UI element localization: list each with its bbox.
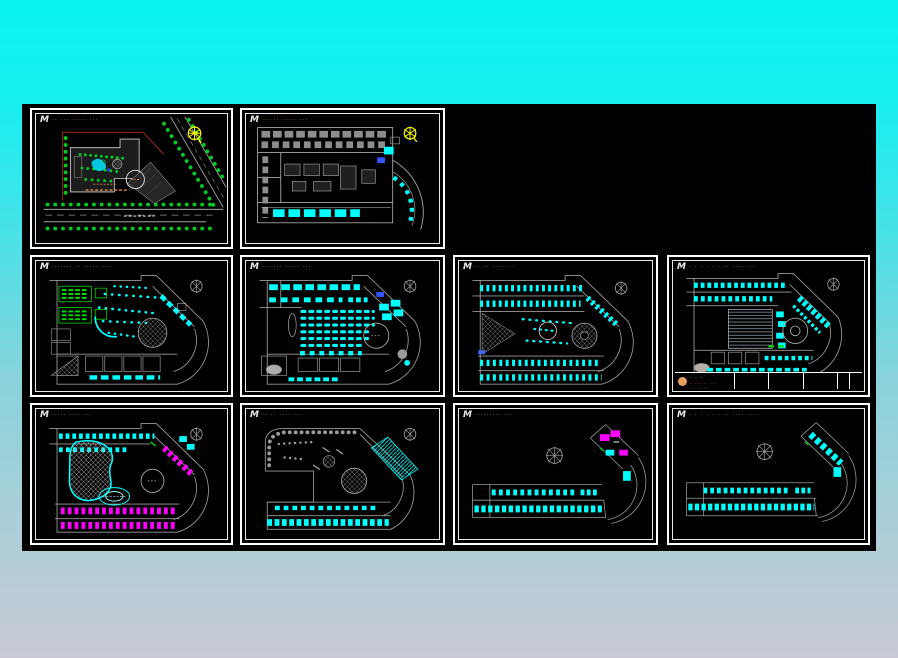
bottom-rooms [261, 356, 359, 379]
stage-oval [288, 313, 296, 336]
north-compass-icon [191, 279, 202, 293]
bottom-rooms [86, 356, 160, 377]
floor-plan-drawing [246, 261, 439, 391]
title-block-line1: · · · · · · · · · · · [690, 371, 731, 381]
sheet-floor-plan-8[interactable]: M ········· ··· [453, 403, 658, 545]
hatched-stair [51, 356, 78, 375]
circle-feature [364, 323, 389, 348]
title-block-brand: · · · · · · · · · · · ········ ··· ·····… [675, 373, 734, 389]
building-outline [260, 276, 421, 385]
sheet-inner-frame: M ·· ·· ···· ··· [458, 260, 653, 392]
floor-plan-drawing [673, 409, 864, 539]
wing-cyan-hatch [371, 437, 417, 480]
north-compass-icon [546, 447, 563, 464]
wing-rooms [161, 296, 191, 325]
sheet-floor-plan-1[interactable]: M ··· ·· ····· ··· [240, 108, 445, 249]
north-compass-icon [615, 281, 627, 295]
blue-mark [478, 350, 485, 354]
brand-circle-logo [678, 377, 687, 386]
sheet-inner-frame: M · · · · · · ·· ···· ··· [672, 260, 865, 392]
sheet-floor-plan-6[interactable]: M ····· ···· ··· [30, 403, 233, 545]
hatched-circle-feature [138, 318, 167, 347]
north-compass-icon [188, 126, 201, 143]
wing-beds-magenta [164, 448, 193, 475]
floor-plan-drawing [459, 261, 652, 391]
title-block-cell [837, 373, 850, 389]
floor-plan-drawing [36, 261, 227, 391]
sheet-floor-plan-3[interactable]: M ··· ··· ····· ··· [240, 255, 445, 397]
sheet-inner-frame: M ··· ·· ····· ··· [245, 113, 440, 244]
title-block-cell [849, 373, 862, 389]
north-compass-icon [404, 427, 416, 441]
north-compass-icon [404, 127, 417, 142]
inner-rooms [285, 164, 376, 191]
oval-spa-feature [99, 488, 130, 505]
circle-feature [141, 469, 164, 492]
north-compass-icon [191, 427, 202, 441]
pool-blob [69, 441, 112, 501]
dotted-circle-feature [342, 468, 367, 493]
guestroom-beds-bottom [480, 363, 602, 378]
side-cyan-rooms [776, 311, 786, 348]
floor-plan-drawing [246, 114, 439, 243]
sheet-floor-plan-5[interactable]: M · · · · · · ·· ···· ··· [667, 255, 870, 397]
green-furniture-groups [59, 286, 107, 323]
circle-core [581, 332, 589, 340]
sheet-floor-plan-7[interactable]: M ·· ·· ···· ··· [240, 403, 445, 545]
sheet-inner-frame: M ······· ·· ····· ···· [35, 260, 228, 392]
guestroom-beds [474, 492, 601, 508]
bed-rows-magenta [61, 511, 178, 526]
sheet-inner-frame: M ·· ·· ···· ··· [245, 408, 440, 540]
north-compass-icon [828, 277, 839, 291]
small-hatched-circle [323, 456, 335, 468]
floor-plan-drawing [459, 409, 652, 539]
top-room-furniture [269, 287, 367, 300]
north-compass-icon [404, 279, 416, 293]
room-band-top [261, 134, 388, 145]
north-compass-icon [756, 443, 773, 460]
title-block-cell [803, 373, 837, 389]
sheet-floor-plan-4[interactable]: M ·· ·· ···· ··· [453, 255, 658, 397]
drawing-canvas: M ·· ··· ····· ··· [22, 104, 876, 551]
title-block-cell [734, 373, 768, 389]
title-block-cell [768, 373, 802, 389]
sheet-inner-frame: M ········· ··· [458, 408, 653, 540]
floor-plan-drawing [36, 409, 227, 539]
sheet-inner-frame: M ····· ···· ··· [35, 408, 228, 540]
white-circle-feature [539, 322, 556, 339]
sheet-floor-plan-2[interactable]: M ······· ·· ····· ···· [30, 255, 233, 397]
building-footprint [70, 139, 175, 204]
floor-plan-drawing [246, 409, 439, 539]
wing-magenta-rooms [600, 430, 631, 480]
sheet-inner-frame: M ·· ··· ····· ··· [35, 113, 228, 244]
curved-wing [393, 160, 424, 229]
banquet-table-grid [302, 311, 373, 345]
sheet-title-block: · · · · · · · · · · · ········ ··· ·····… [675, 372, 862, 389]
sheet-floor-plan-9[interactable]: M · · · · · · ·· ···· ···· [667, 403, 870, 545]
cyan-room-strip [261, 207, 390, 213]
wing-junction [377, 137, 399, 163]
site-plan-drawing [36, 114, 227, 243]
sheet-inner-frame: M ··· ··· ····· ··· [245, 260, 440, 392]
title-block-line2: ········ ··· ········ [690, 381, 731, 391]
planting-dots [269, 432, 358, 469]
sheet-inner-frame: M · · · · · · ·· ···· ···· [672, 408, 865, 540]
circle-feature [783, 318, 808, 343]
bottom-slab-rooms [267, 502, 391, 522]
sheet-site-plan[interactable]: M ·· ··· ····· ··· [30, 108, 233, 249]
guestroom-beds [688, 490, 814, 506]
hatched-triangle [482, 313, 515, 354]
lined-hall [728, 310, 772, 349]
